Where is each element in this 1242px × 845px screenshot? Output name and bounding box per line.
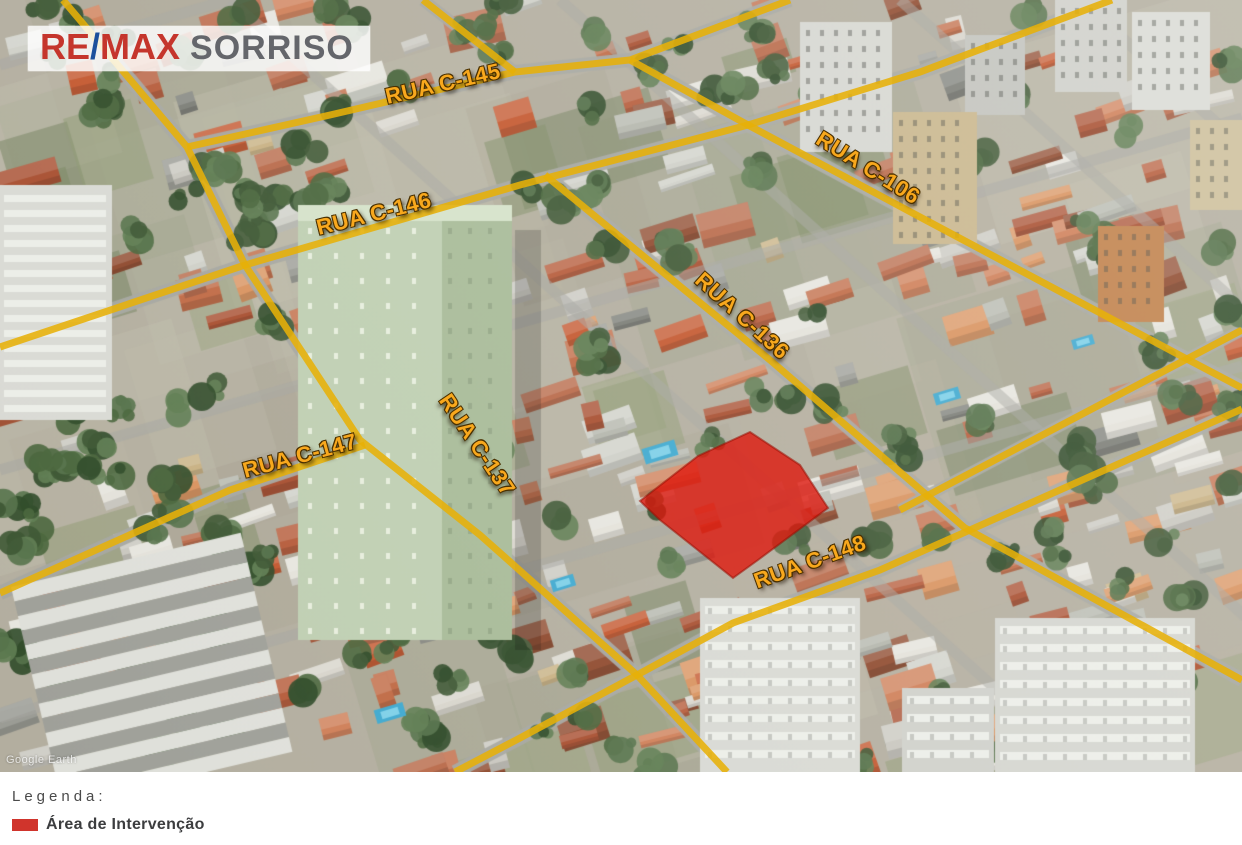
street-line-unnamed-1 — [423, 0, 515, 72]
street-lines-overlay — [0, 0, 1242, 772]
intervention-area-label: Área de Intervenção — [46, 816, 205, 834]
google-earth-watermark: Google Earth — [6, 754, 77, 766]
street-line-rua-c-136 — [545, 175, 1242, 680]
slide-page: RUA C-145RUA C-146RUA C-106RUA C-136RUA … — [0, 0, 1242, 845]
logo-max: MAX — [100, 26, 180, 67]
logo-slash-icon: / — [90, 26, 100, 67]
aerial-map: RUA C-145RUA C-146RUA C-106RUA C-136RUA … — [0, 0, 1242, 772]
street-line-rua-c-147 — [0, 445, 365, 593]
legend: Legenda: Área de Intervenção — [0, 772, 1242, 845]
remax-sorriso-logo: RE/MAX SORRISO — [28, 26, 370, 71]
street-line-rua-c-148 — [455, 409, 1242, 772]
street-line-rua-c-137 — [63, 0, 727, 772]
street-line-rua-c-106 — [630, 60, 1242, 388]
intervention-area-swatch — [12, 819, 38, 831]
logo-sorriso: SORRISO — [190, 31, 354, 65]
remax-wordmark: RE/MAX — [40, 29, 180, 65]
legend-title: Legenda: — [12, 788, 107, 805]
legend-item-intervention: Área de Intervenção — [12, 816, 205, 834]
logo-re: RE — [40, 26, 90, 67]
